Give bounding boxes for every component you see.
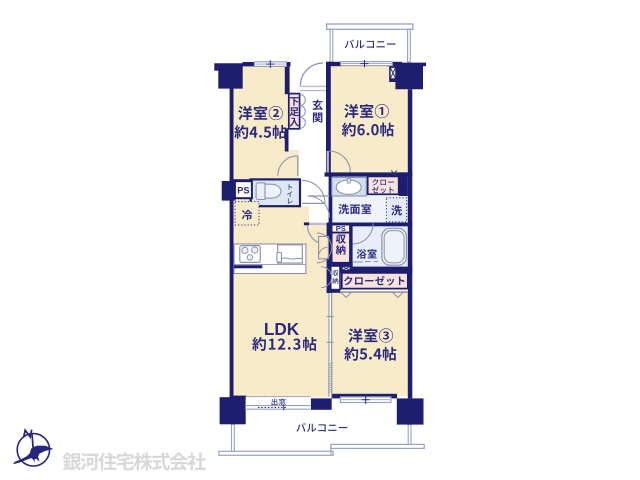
svg-text:LDK: LDK <box>264 319 300 339</box>
svg-text:PS: PS <box>237 186 249 196</box>
